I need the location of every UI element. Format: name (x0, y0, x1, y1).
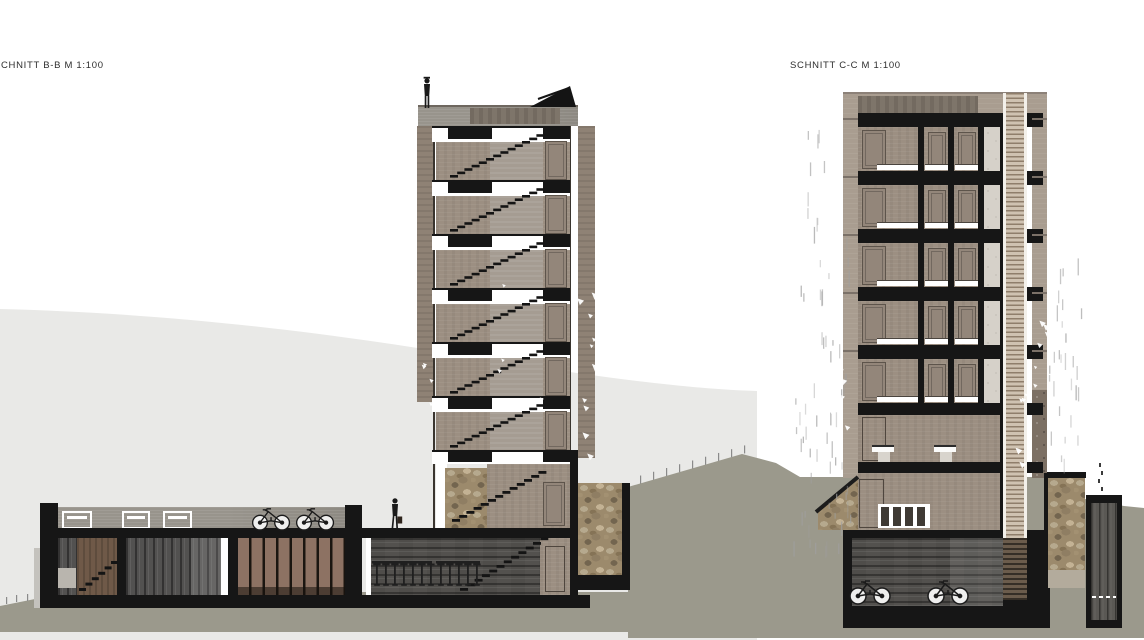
rb-col-joint (1032, 292, 1047, 294)
tower-right-screen (578, 126, 595, 458)
rb-floor-1-bed-c (955, 222, 979, 228)
tower-floor-0-lintel-right (543, 126, 570, 139)
rb-ground-slab-stub (1027, 462, 1043, 473)
rb-floor-4-bed-b (925, 396, 949, 402)
tower-floor-5-lintel-right (543, 396, 570, 409)
rb-window-slot (917, 507, 925, 526)
rb-floor-2-bed-c (955, 280, 979, 286)
tower-floor-1-core-strip (490, 196, 543, 234)
tower-floor-1-lintel-right (543, 180, 570, 193)
rb-floor-1-bed-a (877, 222, 918, 228)
rb-col-joint (843, 118, 858, 120)
tower-floor-4-lintel-left (448, 342, 492, 355)
gabion-footing (578, 575, 630, 590)
rb-floor-0-bed-b (925, 164, 949, 170)
rb-toilet-seat (872, 445, 894, 452)
tower-floor-4-lintel-right (543, 342, 570, 355)
rb-floor-0-slab (858, 113, 1003, 127)
tower-right-basement-wall (570, 450, 578, 608)
rb-col-joint (843, 292, 858, 294)
storage-room-light (191, 538, 221, 595)
tower-floor-1-door (545, 195, 567, 234)
rb-col-joint (1032, 350, 1047, 352)
tower-floor-5-door (545, 411, 567, 450)
tower-ground-lintel-left (448, 450, 492, 462)
rb-stair-shaft (1003, 93, 1027, 600)
roof-skylight (62, 511, 92, 529)
rb-floor-1-slab (858, 171, 1003, 185)
tower-floor-2-core-strip (490, 250, 543, 288)
rb-stone-right (1048, 478, 1085, 570)
tower-floor-0-core-strip (490, 142, 543, 180)
roof-skylight (163, 511, 192, 529)
tower-floor-5-lintel-left (448, 396, 492, 409)
tower-floor-4-core-strip (490, 358, 543, 396)
rb-floor-2-bed-a (877, 280, 918, 286)
rb-floor-3-bed-c (955, 338, 979, 344)
rb-col-joint (843, 176, 858, 178)
rb-floor-2-slab (858, 229, 1003, 243)
tower-floor-0-lintel-left (448, 126, 492, 139)
tower-left-screen (417, 126, 433, 402)
roof-skylight (122, 511, 150, 529)
rb-floor-1-bed-b (925, 222, 949, 228)
rb-col-joint (1032, 118, 1047, 120)
rb-floor-3-bed-a (877, 338, 918, 344)
rb-basement-ceiling (843, 530, 1003, 538)
rb-floor-0-slab-stub (1027, 113, 1043, 127)
rb-window-slot (905, 507, 913, 526)
rb-floor-3-light-panel (984, 301, 1000, 345)
tower-floor-1-lintel-left (448, 180, 492, 193)
rb-floor-4-divider (948, 359, 954, 403)
rb-floor-0-bed-a (877, 164, 918, 170)
rb-col-joint (843, 234, 858, 236)
rb-floor-2-core-wall (1000, 243, 1003, 287)
rb-col-joint (1032, 176, 1047, 178)
rb-window-slot (881, 507, 889, 526)
rb-floor-4-bed-c (955, 396, 979, 402)
tower-ground-lintel-right (543, 450, 570, 462)
tower-roof-topline (418, 105, 578, 107)
room-divider (228, 538, 238, 595)
rb-col-joint (1032, 234, 1047, 236)
rb-floor-1-divider (948, 185, 954, 229)
light-slit (221, 538, 228, 595)
room-divider (117, 538, 126, 595)
tower-ground-door (543, 482, 565, 526)
tower-floor-5-core-strip (490, 412, 543, 450)
rb-washroom-core-wall (1000, 415, 1003, 462)
rb-window-slot (893, 507, 901, 526)
rb-floor-2-divider (918, 243, 924, 287)
rb-toilet-base (878, 452, 890, 462)
base-ceiling-slab (58, 528, 578, 538)
rb-floor-0-divider (918, 127, 924, 171)
rb-basement-light (950, 538, 1003, 606)
locker-room-lockers (238, 538, 345, 595)
tower-floor-4-door (545, 357, 567, 396)
tower-floor-2-lintel-left (448, 234, 492, 247)
rb-floor-4-core-wall (1000, 359, 1003, 403)
rb-floor-0-bed-c (955, 164, 979, 170)
rb-floor-1-slab-stub (1027, 171, 1043, 185)
rb-floor-2-slab-stub (1027, 229, 1043, 243)
rb-floor-1-core-wall (1000, 185, 1003, 229)
tower-roof-inset (470, 108, 560, 124)
rb-floor-4-slab-stub (1027, 345, 1043, 359)
architectural-section-drawing: CHNITT B-B M 1:100 SCHNITT C-C M 1:100 (0, 0, 1144, 640)
gabion-edge (622, 483, 630, 590)
tower-floor-2-door (545, 249, 567, 288)
base-left-column (40, 503, 58, 595)
gabion-wall (578, 483, 622, 575)
bar-room-wall (371, 538, 540, 595)
rb-floor-0-light-panel (984, 127, 1000, 171)
rb-floor-0-core-wall (1000, 127, 1003, 171)
tower-floor-0-door (545, 141, 567, 180)
scene (0, 0, 1144, 640)
rb-floor-4-light-panel (984, 359, 1000, 403)
rb-roof-right (1027, 93, 1047, 115)
rb-toilet-base (940, 452, 952, 462)
rb-washroom-slab-stub (1027, 403, 1043, 415)
rb-floor-3-bed-b (925, 338, 949, 344)
tower-floor-2-lintel-right (543, 234, 570, 247)
rb-ground-core-wall (1000, 473, 1003, 530)
stair-room-wall (77, 538, 117, 595)
rb-roof-inset (858, 96, 978, 113)
lightwell-interior (1091, 503, 1117, 620)
rb-stone-right-footing (1048, 570, 1085, 588)
tower-floor-3-lintel-left (448, 288, 492, 301)
bar-room-door (545, 546, 565, 592)
rb-floor-0-divider (948, 127, 954, 171)
tower-floor-3-lintel-right (543, 288, 570, 301)
base-right-wall (345, 505, 362, 595)
rb-shaft-low (1003, 538, 1027, 600)
base-roof-band (58, 507, 362, 528)
rb-floor-2-divider (948, 243, 954, 287)
rb-col-joint (843, 350, 858, 352)
rb-floor-4-bed-a (877, 396, 918, 402)
rb-stone-left (818, 477, 858, 530)
tower-floor-3-door (545, 303, 567, 342)
rb-floor-2-bed-b (925, 280, 949, 286)
rb-toilet-seat (934, 445, 956, 452)
tower-ground-stone-wall (445, 468, 487, 528)
rb-floor-3-core-wall (1000, 301, 1003, 345)
rb-floor-3-divider (948, 301, 954, 345)
rb-washroom-slab (858, 403, 1003, 415)
rb-bottom-slab (843, 606, 1050, 628)
rb-floor-1-divider (918, 185, 924, 229)
bench (58, 568, 76, 588)
rb-ground-slab (858, 462, 1003, 473)
rb-floor-3-divider (918, 301, 924, 345)
tower-floor-3-core-strip (490, 304, 543, 342)
rb-floor-1-light-panel (984, 185, 1000, 229)
rb-left-column (843, 93, 858, 478)
base-bottom-slab (40, 595, 590, 608)
rb-floor-2-light-panel (984, 243, 1000, 287)
rb-floor-3-slab-stub (1027, 287, 1043, 301)
rb-floor-4-slab (858, 345, 1003, 359)
rb-floor-4-divider (918, 359, 924, 403)
rb-floor-3-slab (858, 287, 1003, 301)
